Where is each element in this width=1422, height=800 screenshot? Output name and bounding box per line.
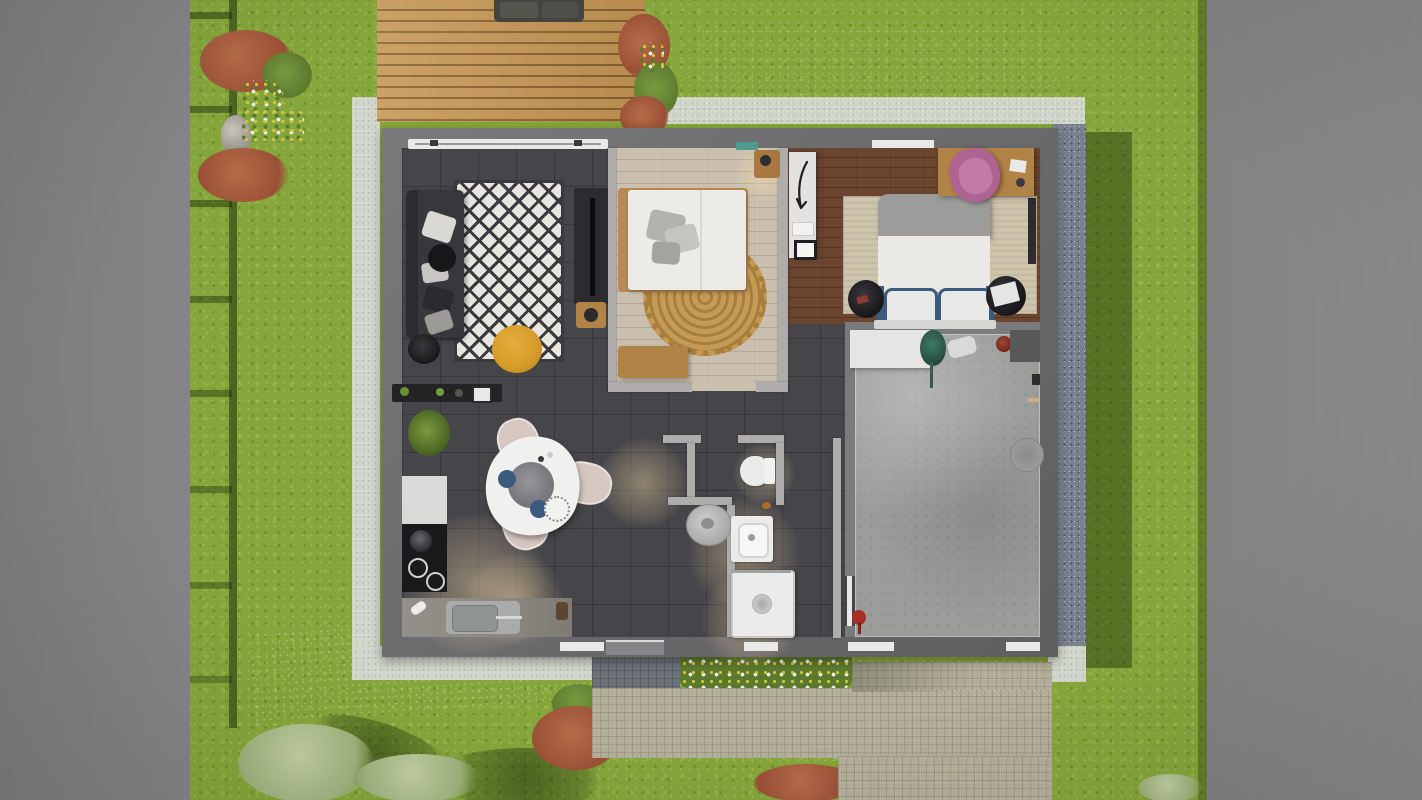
garage-shelf (850, 330, 930, 368)
bath-wall (668, 497, 732, 505)
cooking-pot (410, 530, 432, 552)
red-shrub (198, 148, 288, 202)
table-decor (584, 308, 598, 322)
south-window (848, 642, 894, 651)
fence-shadow-rung (190, 390, 232, 397)
south-window (744, 642, 778, 651)
vanity-basin (738, 523, 769, 558)
wall-bedroom1-bedroom2 (778, 148, 788, 390)
bed2-duvet (878, 236, 990, 292)
branch-decor (792, 158, 812, 216)
fence-shadow-rung (190, 676, 232, 683)
bedroom1-door-threshold (692, 383, 756, 391)
nightstand-lamp (760, 155, 771, 166)
shower-drain (752, 594, 772, 614)
walkway-top (645, 97, 1085, 124)
teal-wall-art (736, 142, 758, 150)
garden-floorplan-render (0, 0, 1422, 800)
desk-paper (1009, 159, 1027, 173)
garage-floor (855, 334, 1040, 637)
pale-bush (1138, 774, 1202, 800)
bed2-headboard (874, 320, 996, 329)
extinguisher-hose (858, 622, 861, 634)
fence-shadow-rung (190, 12, 232, 19)
bedroom1-bench (618, 346, 688, 378)
yellow-pouf (492, 325, 542, 373)
black-side-table (408, 334, 440, 364)
sink-basin (452, 605, 498, 632)
burner (426, 572, 445, 591)
shower-glass (731, 570, 791, 573)
wardrobe-frame-art (794, 240, 817, 260)
fence-shadow-rung (190, 296, 232, 303)
hall-wall (833, 438, 841, 638)
fence-shadow-rung (190, 582, 232, 589)
daisy-patch-top (700, 28, 1060, 100)
patio-path (592, 688, 1052, 758)
white-yellow-flower-cluster (242, 108, 304, 144)
wall-tool (1028, 398, 1039, 402)
sofa-tray (428, 244, 456, 272)
garage-plant (920, 330, 946, 366)
wall-radiator (1028, 198, 1036, 264)
pale-bush (238, 724, 374, 800)
south-window (560, 642, 604, 651)
fence-shadow-rung (190, 486, 232, 493)
pepper-shaker (547, 452, 553, 458)
driveway-shade (852, 662, 1052, 692)
sideboard-plant (436, 388, 444, 396)
wall-living-bedroom1 (608, 148, 616, 390)
house-shadow (1086, 132, 1132, 668)
salt-shaker (538, 456, 544, 462)
garage-mat (1010, 330, 1040, 362)
bed1-pillow (651, 241, 680, 265)
bed1-fold-line (700, 190, 702, 290)
front-door (606, 640, 664, 655)
wc-wall (776, 443, 784, 505)
sideboard-frame (472, 386, 492, 403)
sideboard-jar (455, 389, 463, 397)
outdoor-sofa-cushion (542, 2, 578, 18)
garage-west-wall (845, 334, 855, 576)
garage-plant-stem (930, 362, 933, 388)
kitchen-plant (408, 410, 450, 456)
wall-tool (1032, 374, 1040, 385)
pale-bush (356, 754, 480, 800)
fence-shadow-rung (190, 106, 232, 113)
garage-west-wall (845, 626, 855, 637)
soap-item (762, 502, 771, 509)
road-right (1207, 0, 1422, 800)
bath-wall (663, 435, 701, 443)
driveway (838, 756, 1052, 800)
pattern-dish (544, 496, 570, 522)
sideboard-plant (400, 387, 409, 396)
washer-knob (701, 518, 714, 529)
wardrobe-box (792, 222, 814, 236)
curtain-bracket (574, 140, 582, 146)
south-window (1006, 642, 1040, 651)
road-left (0, 0, 190, 800)
kitchen-counter-white (402, 476, 447, 524)
curtain-bracket (430, 140, 438, 146)
basin-drain (748, 534, 755, 541)
sofa-backrest (406, 190, 418, 338)
wc-wall (738, 435, 784, 443)
deck-border-flowers (640, 42, 664, 72)
fence-shadow-rung (190, 200, 232, 207)
floor-drain (1010, 438, 1044, 472)
wall-bedroom1-south (608, 382, 692, 392)
kitchen-jar (556, 602, 568, 620)
burner (408, 558, 428, 578)
bath-wall (687, 443, 695, 503)
navy-plate (498, 470, 516, 488)
bedroom2-window (872, 140, 934, 148)
desk-item (1016, 178, 1025, 187)
walkway-left (352, 97, 380, 680)
lawn-edge-shadow (1198, 0, 1207, 800)
sink-faucet (496, 616, 522, 619)
tv-screen (590, 198, 595, 296)
toilet-tank (764, 458, 775, 484)
wall-bedroom1-south (756, 382, 788, 392)
outdoor-sofa-cushion (500, 2, 538, 18)
